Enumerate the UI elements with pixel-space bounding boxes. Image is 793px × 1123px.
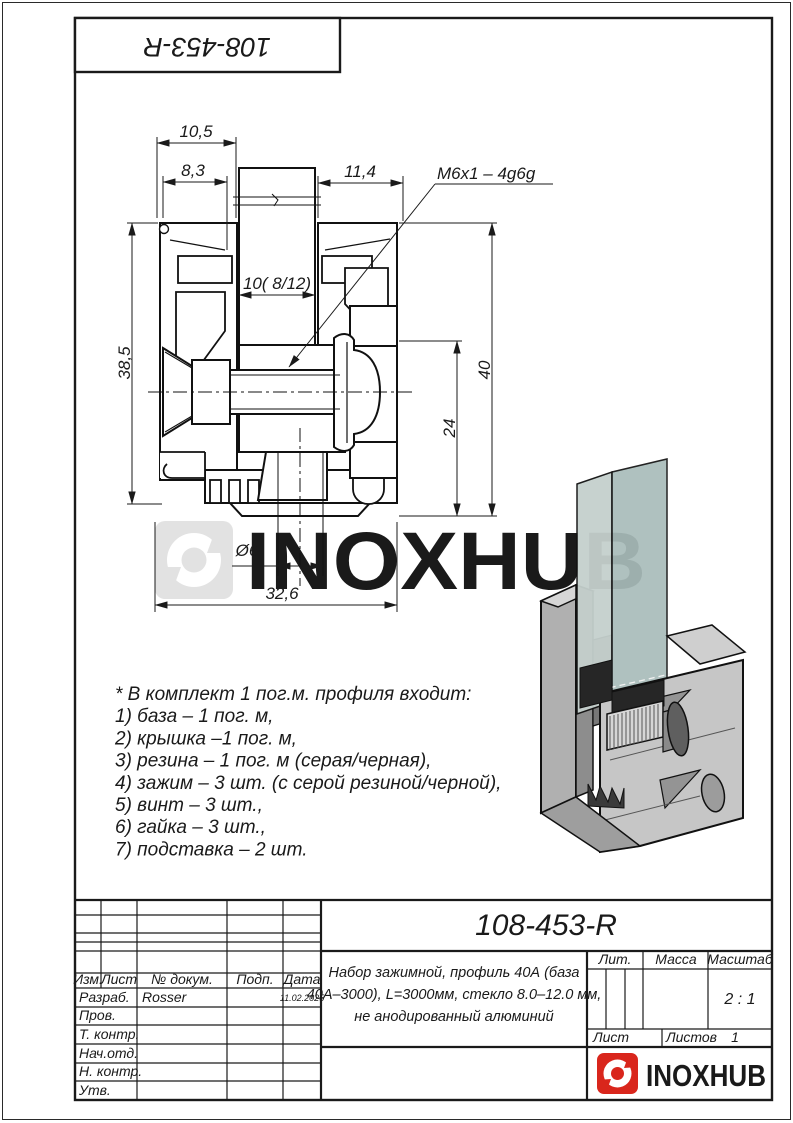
col-header-izm: Изм. xyxy=(73,971,103,987)
dim-hole-diameter-label: Ø6 xyxy=(235,541,259,560)
col-header-list: Лист xyxy=(100,971,137,987)
developer-name: Rosser xyxy=(142,989,188,1005)
row-label-n-control: Н. контр. xyxy=(79,1063,142,1079)
header-mass: Масса xyxy=(655,951,697,967)
header-sheets: Листов xyxy=(665,1029,717,1045)
dim-slot-width-label: 10( 8/12) xyxy=(243,274,311,293)
dim-height-total-label: 40 xyxy=(475,360,494,379)
row-label-checked: Пров. xyxy=(79,1007,116,1023)
description-line: Набор зажимной, профиль 40А (база xyxy=(329,965,580,981)
3d-gasket-left xyxy=(580,660,612,708)
serration-teeth xyxy=(210,480,259,503)
clamp-arm-upper xyxy=(350,306,397,346)
col-header-doc-no: № докум. xyxy=(151,971,213,987)
inoxhub-logo-text: INOXHUB xyxy=(646,1058,766,1093)
titleblock-designation: 108-453-R xyxy=(475,909,617,942)
glass-panel-front xyxy=(612,459,667,702)
base-bottom-outline xyxy=(205,503,397,516)
stamp-designation-text: 108-453-R xyxy=(143,32,271,62)
nut-stand xyxy=(258,452,327,500)
inoxhub-watermark-icon xyxy=(155,521,233,599)
header-scale: Масштаб xyxy=(707,951,774,967)
3d-top-flange xyxy=(667,625,745,664)
clamp-arm-lower xyxy=(350,442,397,478)
sheet-svg: INOXHUB 108-453-R xyxy=(0,0,793,1123)
inoxhub-logo: INOXHUB xyxy=(597,1053,766,1094)
developer-date: 11.02.2025 xyxy=(280,993,325,1003)
header-sheet: Лист xyxy=(592,1029,629,1045)
thread-callout-label: M6x1 – 4g6g xyxy=(437,164,536,183)
dim-flange-lip-label: 8,3 xyxy=(181,161,205,180)
note-line: 4) зажим – 3 шт. (с серой резиной/черной… xyxy=(115,773,501,794)
dim-height-inner-label: 38,5 xyxy=(115,346,134,380)
col-header-date: Дата xyxy=(282,971,321,987)
sheets-count: 1 xyxy=(731,1029,739,1045)
note-line: 6) гайка – 3 шт., xyxy=(115,817,266,838)
note-line: 5) винт – 3 шт., xyxy=(115,795,263,816)
note-line: 2) крышка –1 пог. м, xyxy=(114,728,297,749)
row-label-developed: Разраб. xyxy=(79,989,130,1005)
dim-top-width-label: 10,5 xyxy=(179,122,213,141)
row-label-t-control: Т. контр. xyxy=(79,1026,139,1042)
note-line: 7) подставка – 2 шт. xyxy=(115,839,307,860)
description-line: не анодированный алюминий xyxy=(354,1009,554,1025)
center-cap-channel xyxy=(239,168,315,345)
row-label-approved: Утв. xyxy=(78,1082,111,1098)
dim-height-clamp-label: 24 xyxy=(440,419,459,439)
notes-block: * В комплект 1 пог.м. профиля входит: 1)… xyxy=(114,684,501,860)
title-block: 108-453-R Набор зажимной, профиль 40А (б… xyxy=(73,900,774,1100)
note-line: * В комплект 1 пог.м. профиля входит: xyxy=(115,684,471,705)
clamp-boss-lower xyxy=(239,414,345,452)
note-line: 3) резина – 1 пог. м (серая/черная), xyxy=(115,751,431,772)
dim-base-width-label: 32,6 xyxy=(265,584,299,603)
scale-value: 2 : 1 xyxy=(723,991,755,1008)
top-designation-stamp: 108-453-R xyxy=(75,18,340,72)
3d-left-wall xyxy=(541,585,576,813)
dim-right-offset-label: 11,4 xyxy=(344,162,376,181)
left-groove xyxy=(178,256,232,283)
header-lit: Лит. xyxy=(598,951,632,967)
drawing-sheet: INOXHUB 108-453-R xyxy=(0,0,793,1123)
row-label-dept-head: Нач.отд. xyxy=(79,1045,138,1061)
col-header-sign: Подп. xyxy=(236,971,273,987)
description-line: 40А–3000), L=3000мм, стекло 8.0–12.0 мм, xyxy=(307,987,602,1003)
note-line: 1) база – 1 пог. м, xyxy=(115,706,273,727)
3d-cut-face xyxy=(600,660,743,852)
clamp-boss-upper xyxy=(239,345,345,370)
